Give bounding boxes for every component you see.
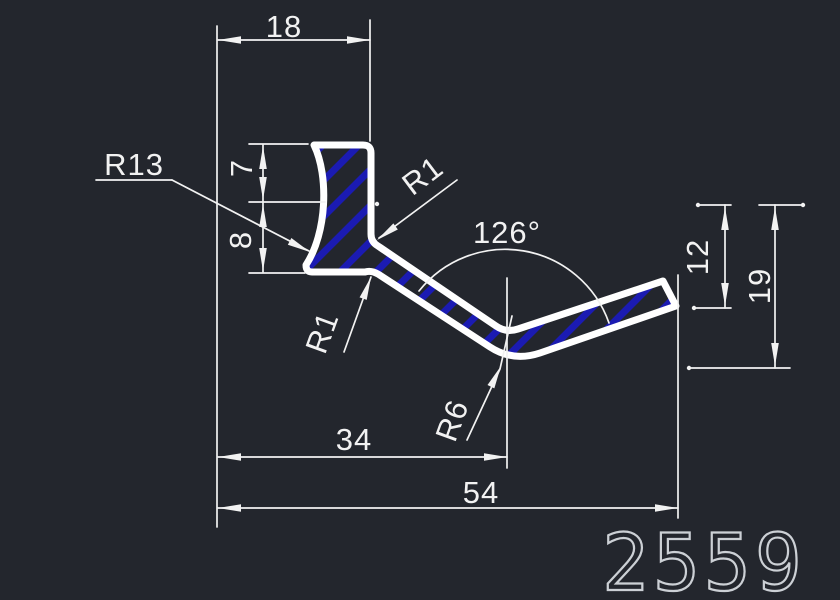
tick-dot <box>687 366 691 370</box>
dim-label-head-lower-height: 8 <box>223 231 258 249</box>
tick-dot <box>375 202 379 206</box>
dim-label-right-height-inner: 12 <box>680 239 715 275</box>
dim-label-left-radius: R13 <box>104 147 164 182</box>
tick-dot <box>696 203 700 207</box>
dim-label-head-upper-height: 7 <box>224 159 259 177</box>
drawing-canvas: 18 7 8 R13 R1 R1 126° 12 19 34 54 R6 255… <box>0 0 840 600</box>
dim-label-right-height-outer: 19 <box>742 268 777 304</box>
dim-label-bend-angle: 126° <box>473 215 541 250</box>
dim-label-top-width: 18 <box>266 9 302 44</box>
part-number-text: 2559 <box>602 519 806 600</box>
tick-dot <box>692 306 696 310</box>
cad-drawing-window: 18 7 8 R13 R1 R1 126° 12 19 34 54 R6 255… <box>0 0 840 600</box>
dim-label-width-to-vertex: 34 <box>336 422 372 457</box>
tick-dot <box>801 203 805 207</box>
dim-label-overall-width: 54 <box>463 475 499 510</box>
